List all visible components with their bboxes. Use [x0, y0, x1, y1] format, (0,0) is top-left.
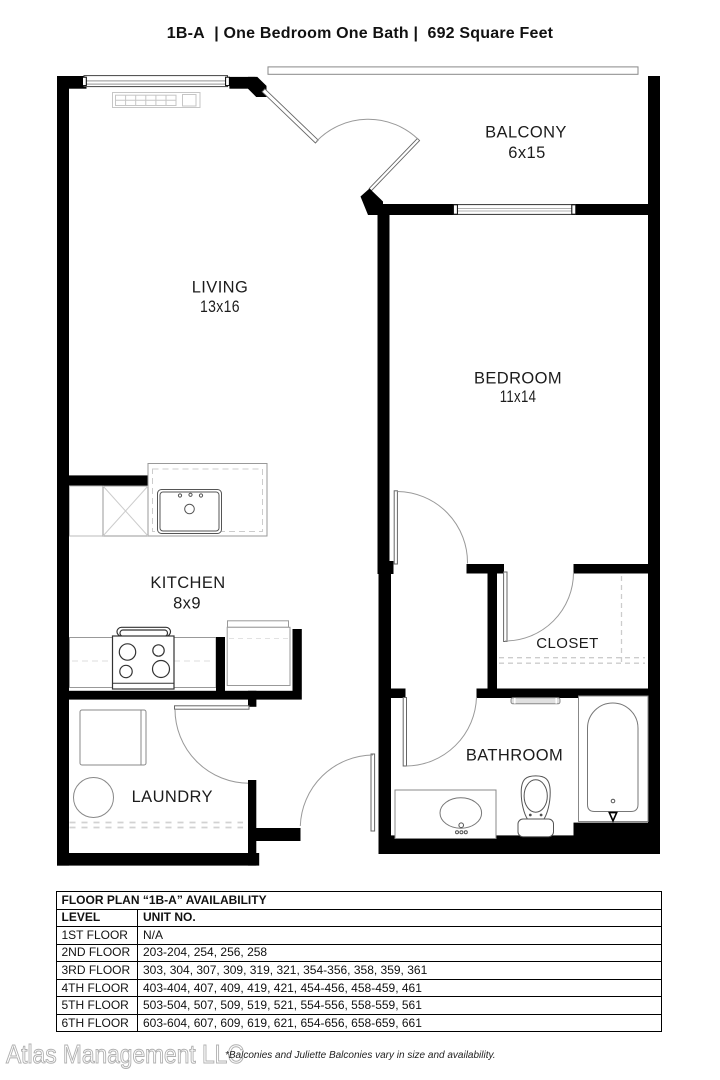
svg-text:11x14: 11x14 — [500, 388, 537, 407]
svg-text:LAUNDRY: LAUNDRY — [132, 788, 213, 806]
svg-text:13x16: 13x16 — [200, 298, 240, 316]
svg-text:8x9: 8x9 — [173, 595, 201, 613]
svg-text:BEDROOM: BEDROOM — [474, 370, 562, 388]
svg-text:6x15: 6x15 — [508, 144, 545, 162]
svg-text:CLOSET: CLOSET — [536, 635, 598, 652]
svg-text:BATHROOM: BATHROOM — [466, 747, 563, 765]
svg-text:LIVING: LIVING — [192, 279, 249, 297]
svg-text:BALCONY: BALCONY — [485, 123, 567, 141]
svg-text:KITCHEN: KITCHEN — [150, 574, 225, 592]
